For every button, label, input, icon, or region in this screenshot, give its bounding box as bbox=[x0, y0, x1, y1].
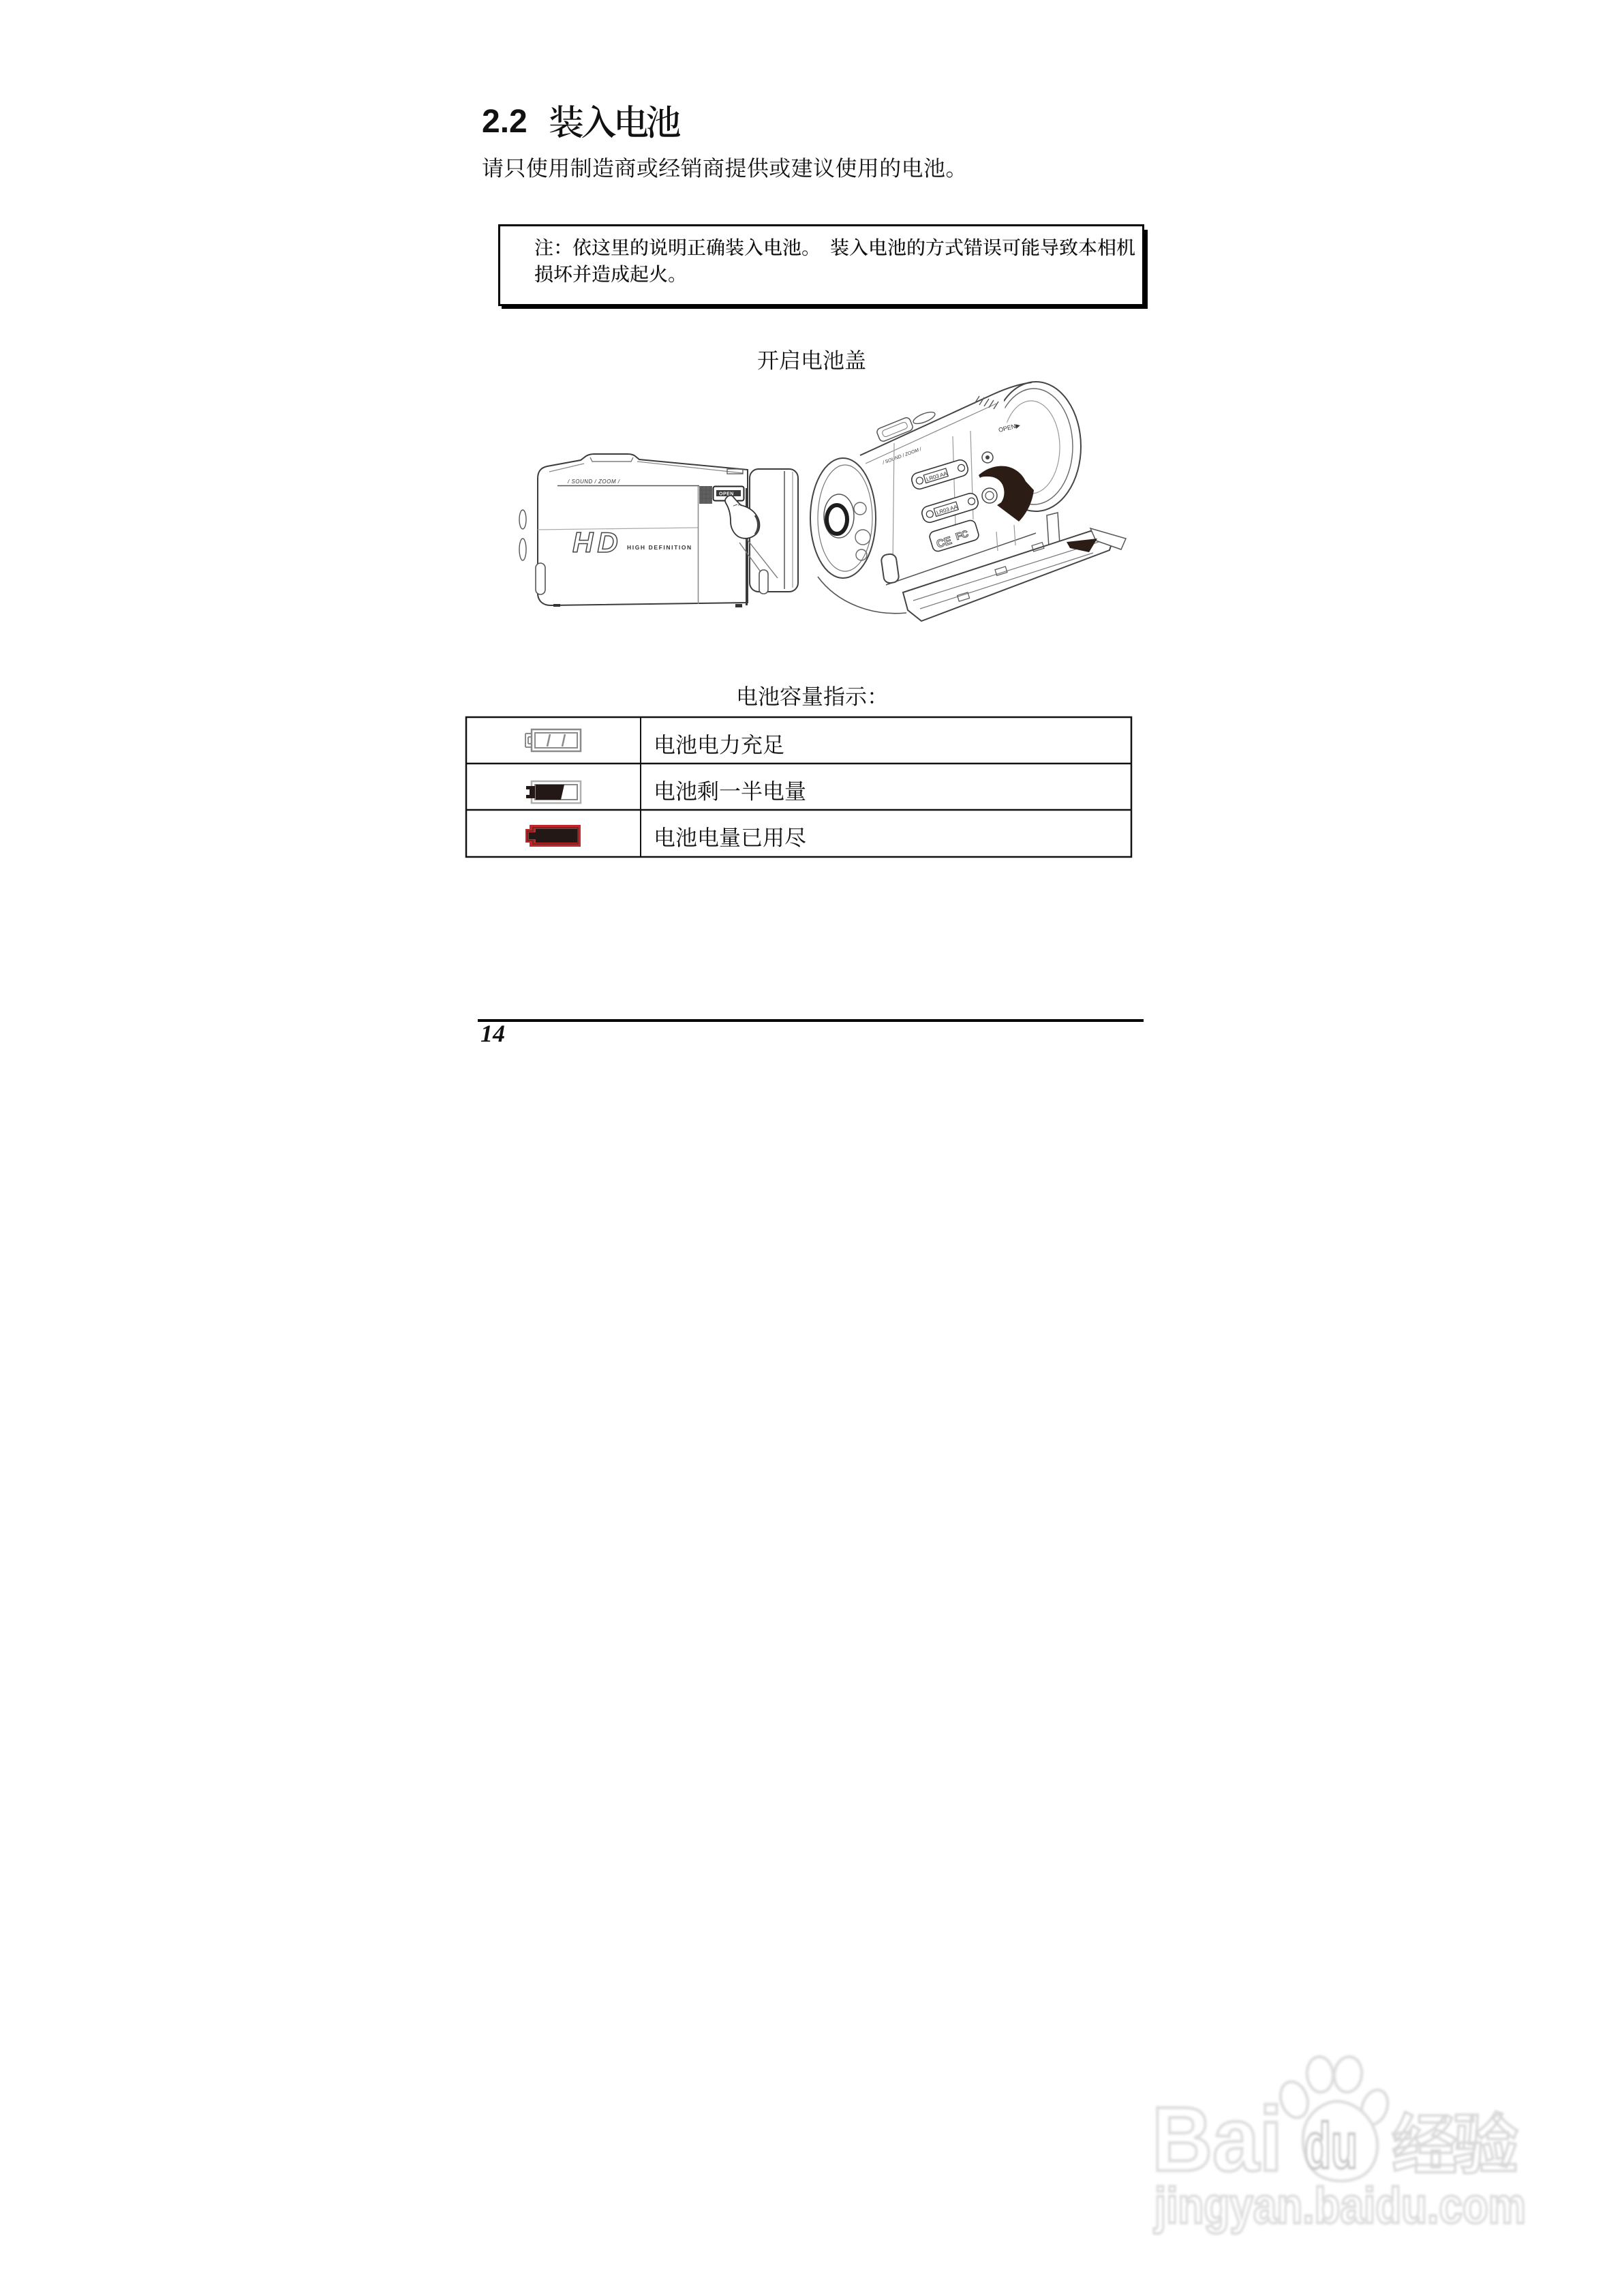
svg-text:HIGH DEFINITION: HIGH DEFINITION bbox=[627, 544, 692, 551]
svg-text:HD: HD bbox=[572, 526, 622, 558]
svg-text:/ SOUND / ZOOM /: / SOUND / ZOOM / bbox=[567, 479, 620, 485]
svg-text:2.2: 2.2 bbox=[482, 104, 527, 140]
svg-text:jingyan.baidu.com: jingyan.baidu.com bbox=[1153, 2177, 1526, 2234]
svg-text:du: du bbox=[1304, 2110, 1358, 2182]
svg-text:14: 14 bbox=[480, 1020, 505, 1047]
svg-text:Bai: Bai bbox=[1152, 2089, 1283, 2190]
